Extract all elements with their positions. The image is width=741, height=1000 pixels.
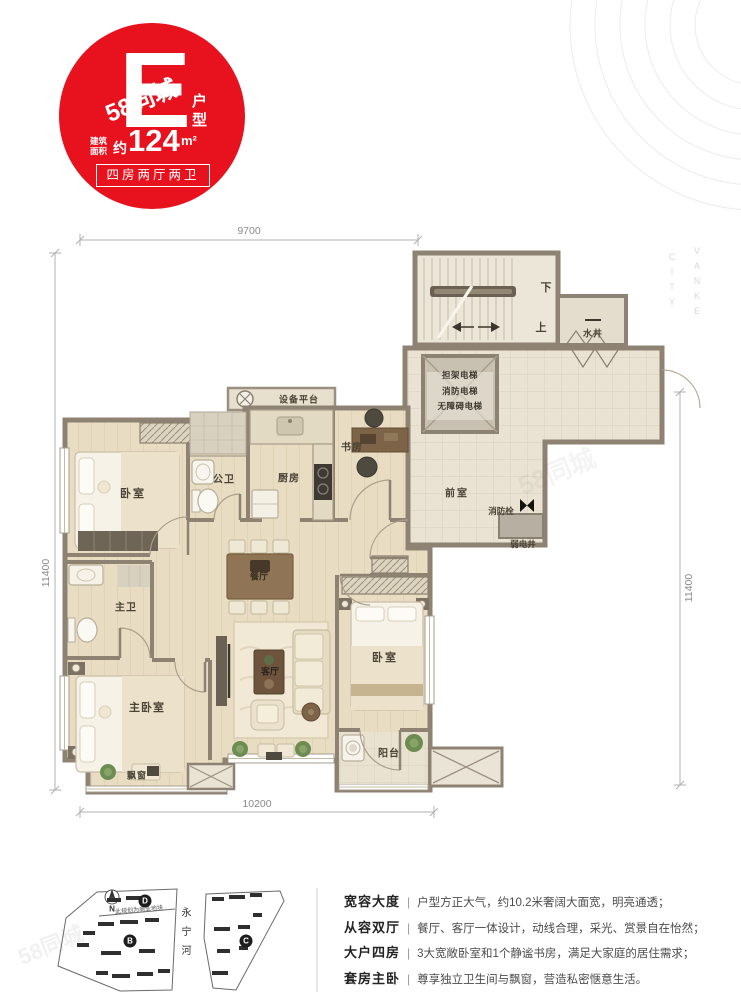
dimension-bottom: 10200 (242, 798, 271, 810)
dimension-top: 9700 (237, 225, 260, 237)
feature-row: 大户四房|3大宽敞卧室和1个静谧书房，满足大家庭的居住需求； (344, 942, 736, 968)
feature-title: 套房主卧 (344, 968, 400, 987)
feature-title: 大户四房 (344, 942, 400, 961)
feature-row: 从容双厅|餐厅、客厅一体设计，动线合理，采光、赏景自在怡然； (344, 917, 736, 943)
feature-description: 3大宽敞卧室和1个静谧书房，满足大家庭的居住需求； (417, 945, 694, 961)
feature-separator: | (407, 895, 410, 909)
parcel-badge-c: C (240, 935, 253, 948)
feature-title: 宽容大度 (344, 891, 400, 910)
dimension-left: 11400 (40, 559, 52, 587)
page: E 户型 建筑 面积 约 124 m² 四房两厅两卫 58同城 9700 102… (0, 0, 741, 1000)
feature-separator: | (407, 972, 410, 986)
brand-vertical-line2: CITY (667, 252, 677, 312)
area-value: 124 (128, 125, 180, 156)
elevator-label: 无障碍电梯 (423, 399, 497, 415)
area-prefix-line1: 建筑 (90, 136, 107, 146)
brand-vertical-line1: VANKE (692, 246, 702, 321)
weak-elec-box (499, 514, 543, 538)
decor-arcs (570, 0, 741, 210)
layout-summary: 四房两厅两卫 (96, 164, 210, 187)
parcel-badge-d: D (139, 895, 152, 908)
area-approx: 约 (113, 138, 127, 158)
feature-separator: | (407, 921, 410, 935)
dimension-right: 11400 (683, 574, 695, 602)
feature-row: 套房主卧|尊享独立卫生间与飘窗，营造私密惬意生活。 (344, 968, 736, 994)
area-prefix: 建筑 面积 (90, 136, 107, 156)
type-suffix: 户型 (188, 93, 209, 131)
feature-description: 户型方正大气，约10.2米奢阔大面宽，明亮通透； (417, 894, 669, 910)
feature-list: 宽容大度|户型方正大气，约10.2米奢阔大面宽，明亮通透；从容双厅|餐厅、客厅一… (344, 891, 736, 993)
river-label: 永宁河 (177, 907, 192, 964)
elevator-labels: 担架电梯消防电梯无障碍电梯 (423, 368, 497, 415)
elevator-label: 担架电梯 (423, 368, 497, 384)
parcel-badge-b: B (124, 935, 137, 948)
elevator-label: 消防电梯 (423, 384, 497, 400)
feature-description: 尊享独立卫生间与飘窗，营造私密惬意生活。 (417, 971, 647, 987)
feature-description: 餐厅、客厅一体设计，动线合理，采光、赏景自在怡然； (417, 920, 705, 936)
feature-row: 宽容大度|户型方正大气，约10.2米奢阔大面宽，明亮通透； (344, 891, 736, 917)
area-prefix-line2: 面积 (90, 146, 107, 156)
type-badge: E 户型 建筑 面积 约 124 m² 四房两厅两卫 58同城 (59, 23, 245, 209)
area-unit: m² (181, 133, 197, 148)
feature-title: 从容双厅 (344, 917, 400, 936)
feature-separator: | (407, 946, 410, 960)
